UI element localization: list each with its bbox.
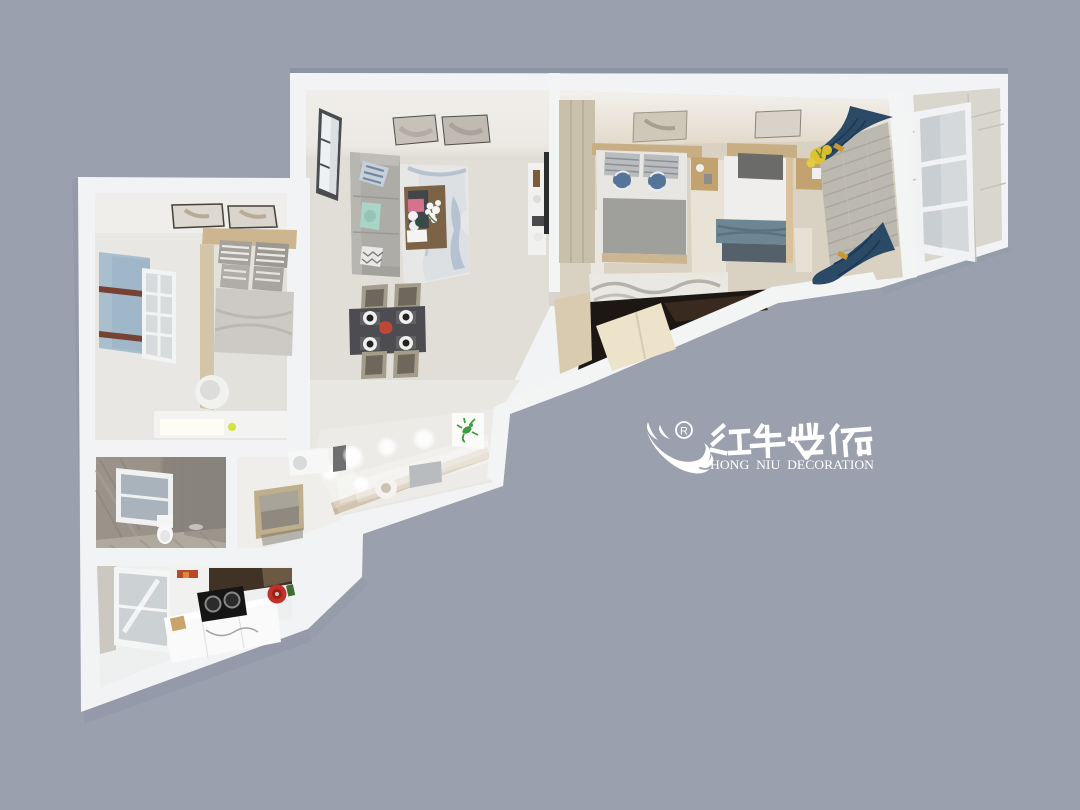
- svg-text:HONG NIU DECORATION: HONG NIU DECORATION: [710, 457, 875, 472]
- svg-text:R: R: [680, 426, 688, 438]
